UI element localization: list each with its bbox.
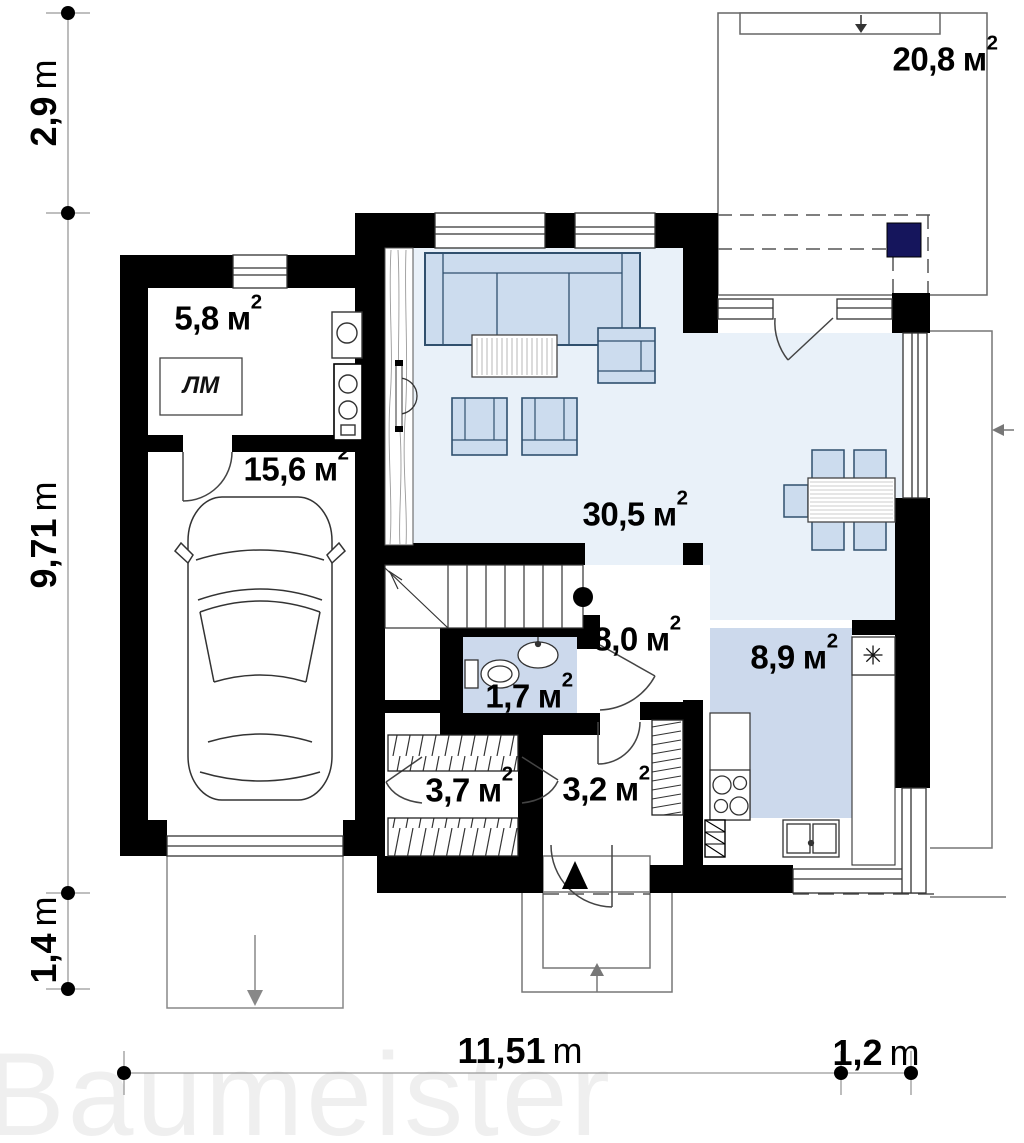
area-label-wardrobe: 3,7м2: [425, 774, 512, 807]
window-living-2: [575, 213, 655, 248]
area-label-wc: 1,7м2: [485, 680, 572, 713]
dim-label-left-1: 2,9m: [26, 59, 62, 146]
sidelight-left: [718, 299, 773, 319]
window-living-1: [435, 213, 545, 248]
driveway: [167, 856, 343, 1008]
garage-door: [167, 836, 343, 856]
terrace-post-icon: [887, 223, 921, 257]
laundry-label: ЛМ: [183, 372, 219, 400]
dim-label-bottom-2: 1,2m: [832, 1035, 919, 1071]
floorplan-graphic: [0, 0, 1024, 1143]
door-hall-entry: [598, 722, 640, 764]
door-utility-garage: [183, 452, 232, 501]
fireplace-wall: [385, 248, 417, 545]
area-label-entry: 3,2м2: [562, 773, 649, 806]
vent-icon: ✳: [862, 641, 884, 672]
armchair: [452, 398, 507, 455]
kitchen-sink-icon: [783, 820, 839, 857]
floorplan-page: Baumeister: [0, 0, 1024, 1143]
window-right: [903, 333, 927, 498]
sidelight-right: [837, 299, 892, 319]
area-label-terrace: 20,8м2: [892, 43, 997, 76]
stove-icon: [710, 770, 750, 820]
counter-right: [852, 675, 895, 865]
fridge-icon: [705, 820, 725, 857]
entry-porch: [522, 856, 672, 992]
area-label-garage: 15,6м2: [243, 453, 348, 486]
dim-label-bottom-1: 11,51m: [457, 1033, 582, 1069]
boiler-icon: [332, 312, 362, 440]
entry-closet: [652, 720, 683, 815]
armchair: [522, 398, 577, 455]
toilet-icon: [465, 660, 478, 688]
armchair: [598, 328, 655, 383]
dining-table: [808, 478, 895, 522]
window-utility: [233, 255, 287, 288]
area-label-utility: 5,8м2: [174, 302, 261, 335]
stair-newel-icon: [573, 587, 593, 607]
area-label-kitchen: 8,9м2: [750, 641, 837, 674]
stairs: [385, 565, 593, 628]
area-label-hall: 8,0м2: [593, 623, 680, 656]
dim-label-left-3: 1,4m: [26, 896, 62, 983]
roof-outline: [930, 331, 1014, 897]
dim-label-left-2: 9,71m: [26, 481, 62, 588]
area-label-living-room: 30,5м2: [582, 498, 687, 531]
corner-window-side: [902, 788, 926, 893]
coffee-table: [472, 335, 557, 377]
car-icon: [175, 497, 345, 800]
